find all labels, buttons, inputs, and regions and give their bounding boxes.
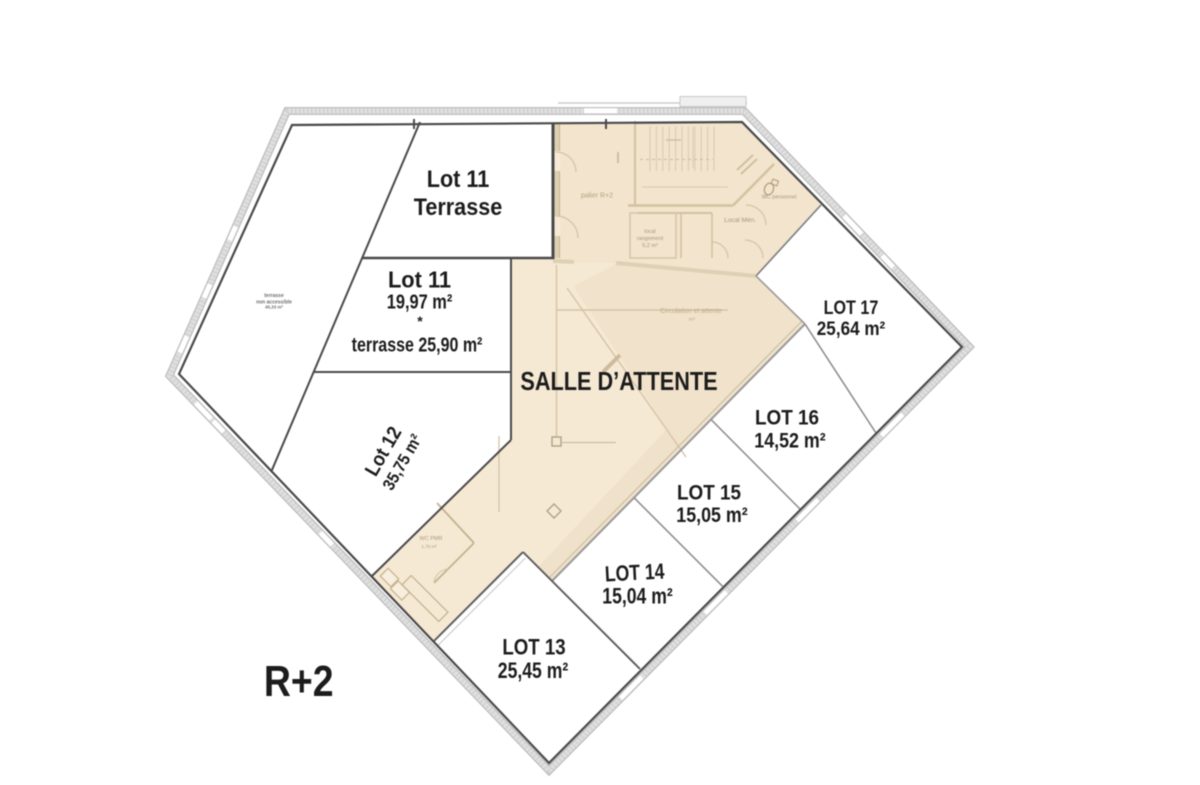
svg-text:LOT 16: LOT 16	[755, 407, 819, 430]
svg-text:Terrasse: Terrasse	[414, 193, 502, 220]
svg-text:LOT 15: LOT 15	[677, 482, 741, 505]
svg-text:5,2 m²: 5,2 m²	[642, 243, 658, 249]
svg-text:25,45 m²: 25,45 m²	[498, 659, 569, 683]
svg-text:Lot 11: Lot 11	[427, 165, 490, 192]
svg-text:palier R+2: palier R+2	[581, 193, 613, 200]
svg-text:14,52 m²: 14,52 m²	[754, 429, 826, 453]
svg-text:R+2: R+2	[264, 656, 334, 706]
svg-text:15,04 m²: 15,04 m²	[602, 585, 673, 609]
svg-text:terrasse: terrasse	[264, 293, 284, 299]
svg-text:LOT 13: LOT 13	[502, 636, 565, 660]
svg-text:Circulation et attente: Circulation et attente	[660, 307, 722, 315]
svg-text:rangement: rangement	[637, 236, 664, 242]
svg-text:local: local	[644, 229, 655, 235]
svg-text:15,05 m²: 15,05 m²	[676, 504, 748, 528]
svg-text:m²: m²	[689, 317, 696, 323]
svg-text:Lot 11: Lot 11	[388, 267, 451, 293]
svg-text:*: *	[417, 313, 423, 329]
svg-text:25,64 m²: 25,64 m²	[817, 318, 885, 339]
svg-text:Local Mén.: Local Mén.	[724, 217, 756, 224]
svg-text:19,97 m²: 19,97 m²	[387, 290, 453, 313]
svg-text:45,33 m²: 45,33 m²	[265, 305, 284, 310]
svg-text:LOT 17: LOT 17	[824, 297, 879, 319]
svg-text:SALLE D’ATTENTE: SALLE D’ATTENTE	[520, 367, 717, 396]
svg-text:1,70 m²: 1,70 m²	[421, 544, 437, 549]
svg-text:terrasse 25,90 m²: terrasse 25,90 m²	[352, 334, 483, 356]
svg-text:WC PMR: WC PMR	[420, 536, 443, 542]
svg-text:LOT 14: LOT 14	[604, 560, 665, 587]
svg-text:WC personnel: WC personnel	[762, 195, 797, 201]
